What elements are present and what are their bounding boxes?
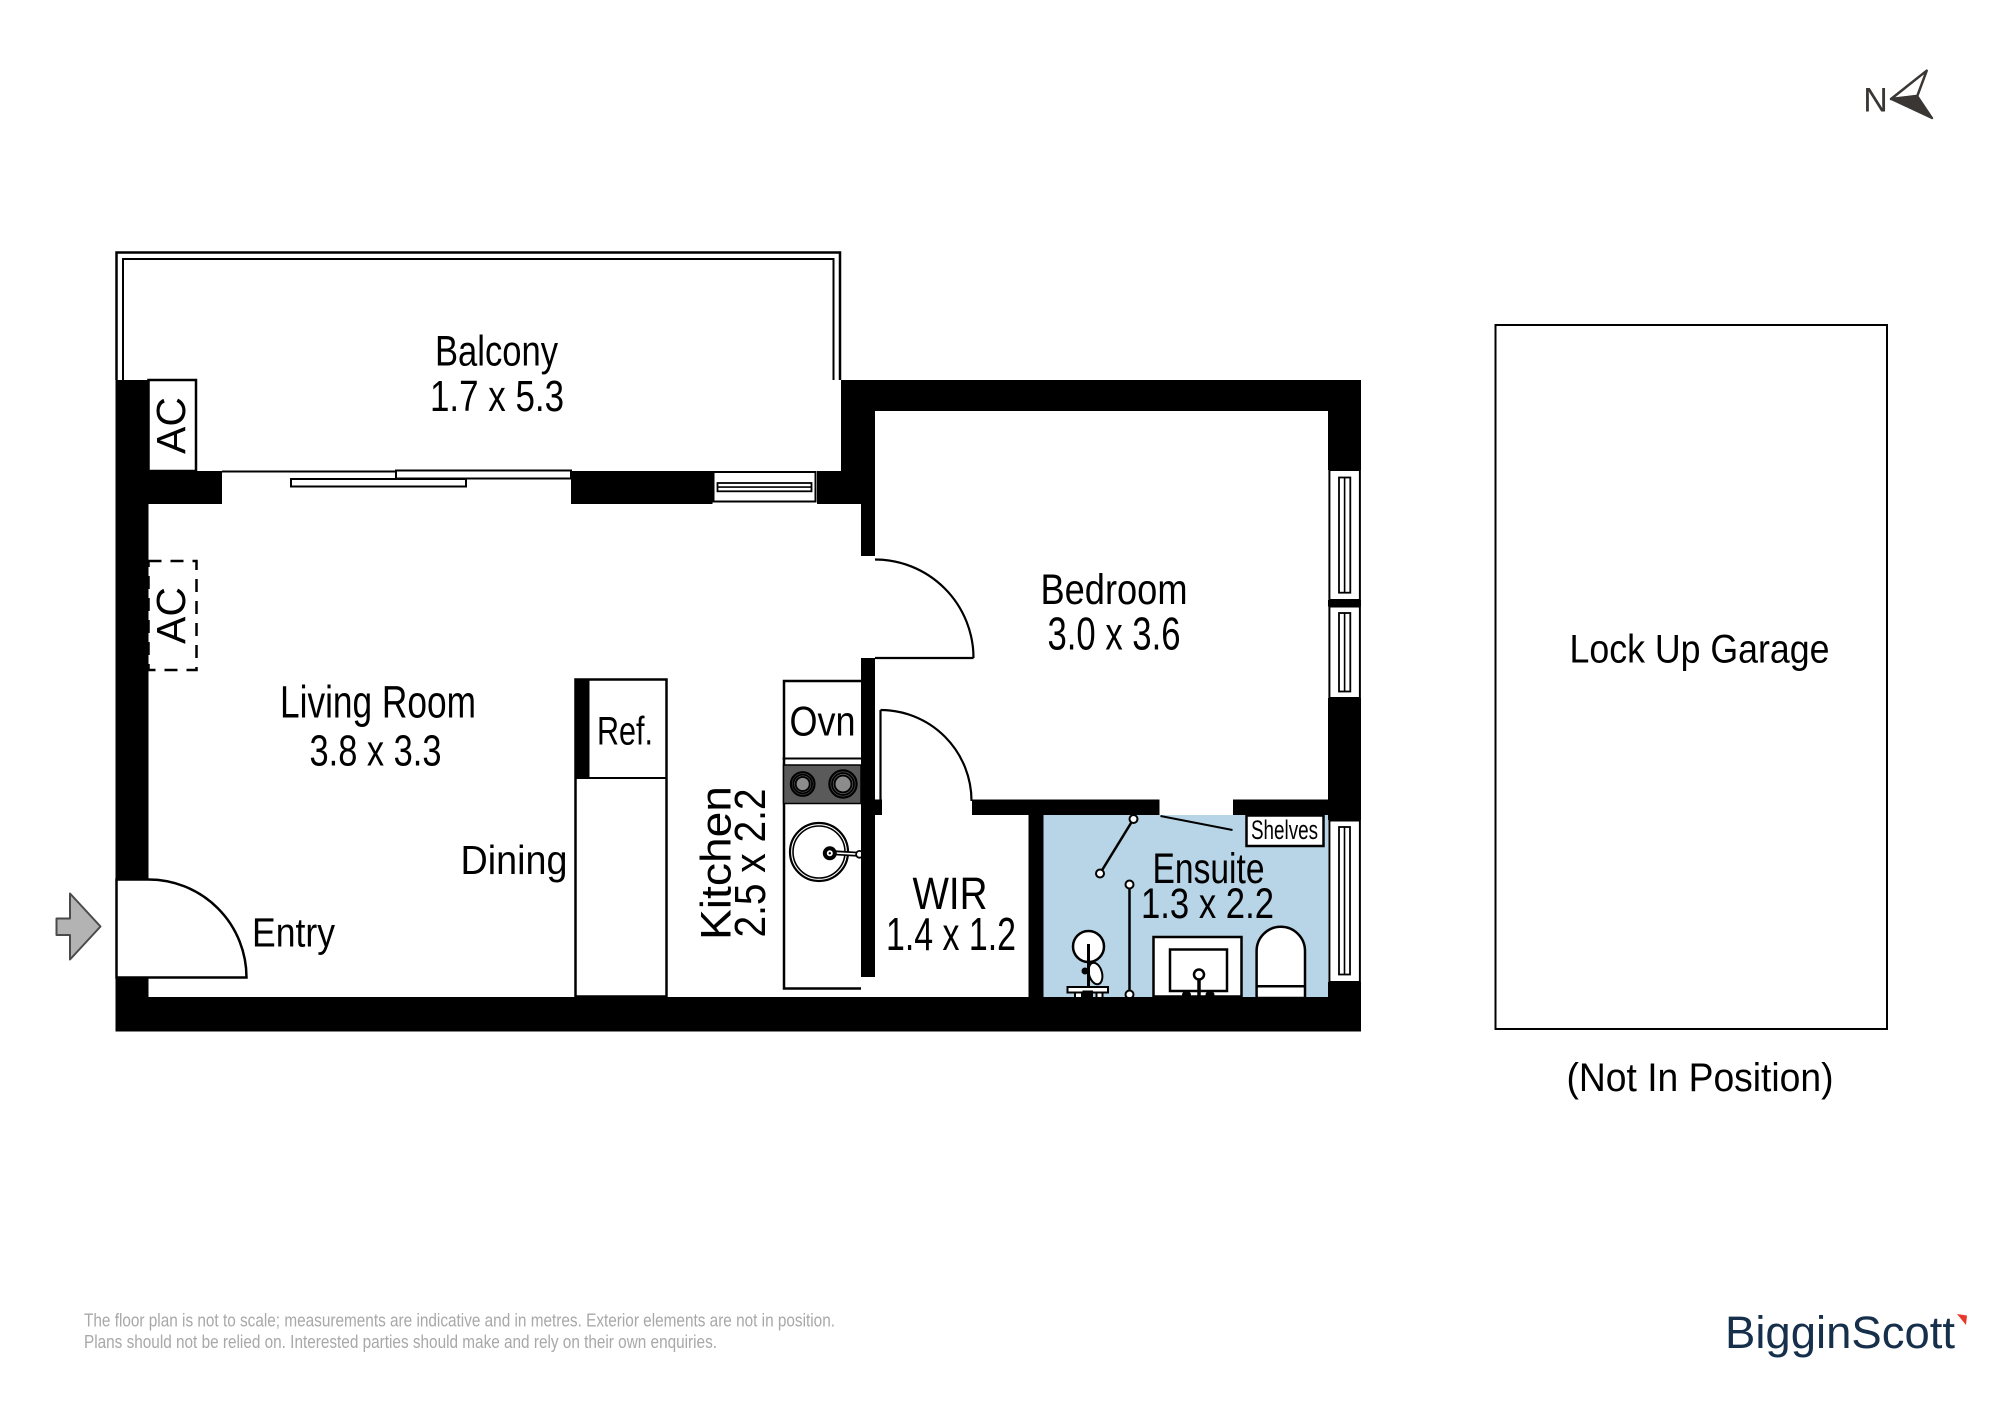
svg-text:The floor plan is not to scale: The floor plan is not to scale; measurem…	[84, 1310, 835, 1331]
svg-text:1.3 x 2.2: 1.3 x 2.2	[1141, 880, 1274, 928]
svg-text:Lock Up Garage: Lock Up Garage	[1570, 628, 1830, 672]
svg-text:Plans should not be relied on.: Plans should not be relied on. Intereste…	[84, 1331, 717, 1352]
svg-text:Shelves: Shelves	[1251, 815, 1318, 845]
svg-text:AC: AC	[148, 397, 194, 454]
svg-text:3.0 x 3.6: 3.0 x 3.6	[1048, 608, 1181, 660]
svg-text:1.4 x 1.2: 1.4 x 1.2	[886, 908, 1016, 960]
svg-text:2.5 x 2.2: 2.5 x 2.2	[726, 789, 775, 938]
svg-text:Living Room: Living Room	[280, 677, 476, 728]
svg-text:3.8 x 3.3: 3.8 x 3.3	[310, 727, 442, 776]
svg-text:(Not In Position): (Not In Position)	[1567, 1056, 1834, 1100]
svg-text:1.7 x 5.3: 1.7 x 5.3	[430, 372, 564, 421]
svg-text:Ref.: Ref.	[597, 710, 653, 754]
svg-text:N: N	[1863, 82, 1888, 120]
svg-text:Balcony: Balcony	[435, 328, 558, 376]
svg-text:AC: AC	[148, 587, 194, 644]
svg-text:Dining: Dining	[461, 837, 568, 883]
svg-text:Ovn: Ovn	[790, 698, 856, 745]
svg-text:BigginScott: BigginScott	[1725, 1307, 1955, 1358]
svg-text:Entry: Entry	[252, 910, 335, 956]
